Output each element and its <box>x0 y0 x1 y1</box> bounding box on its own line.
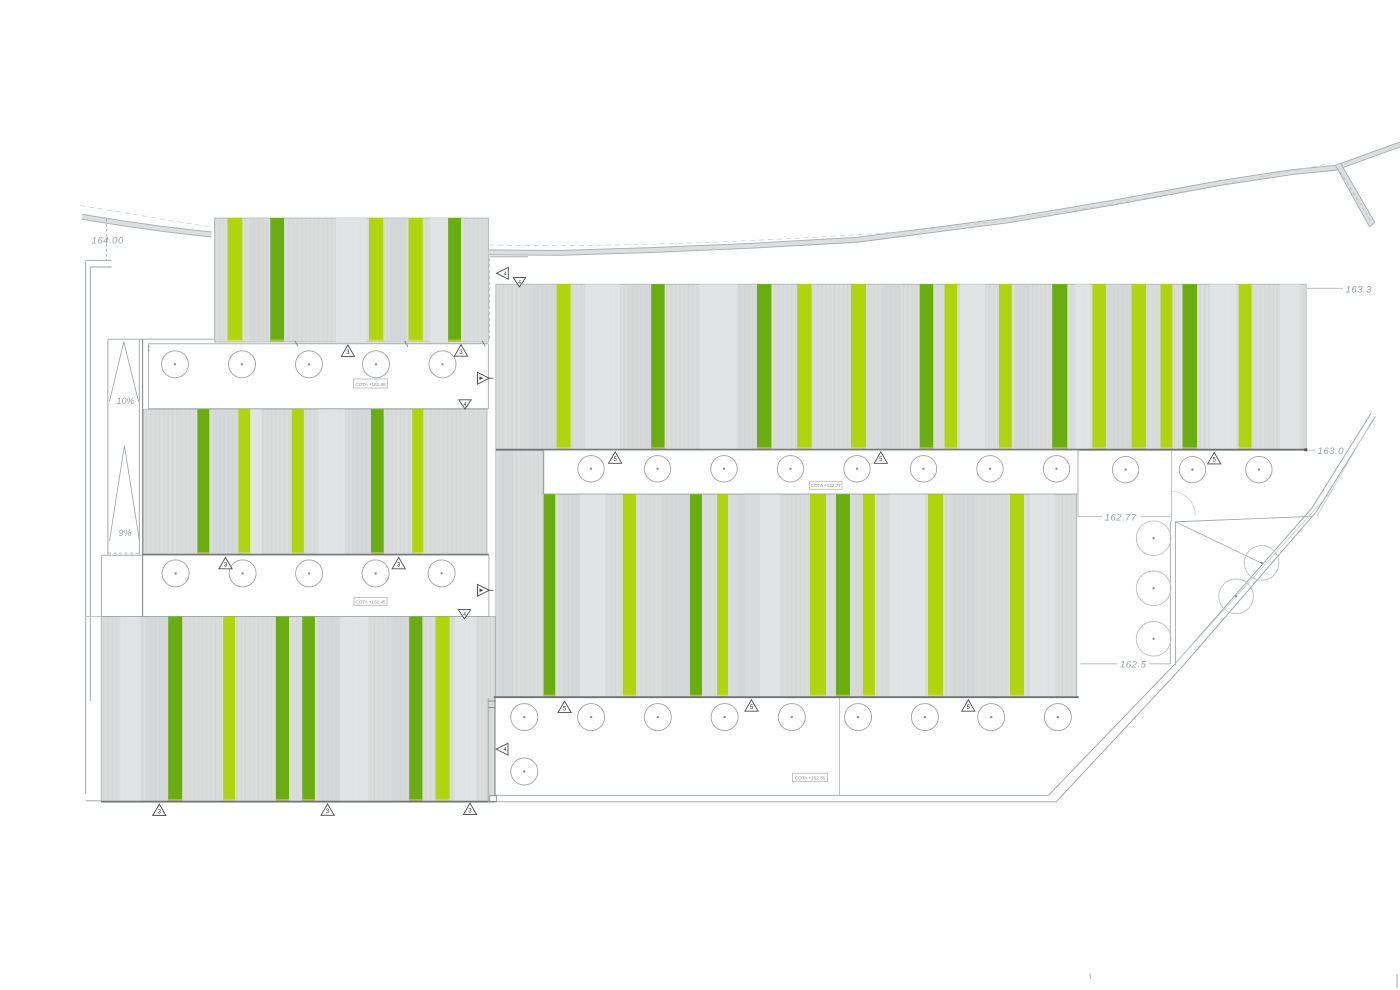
svg-text:COTA +162.77: COTA +162.77 <box>811 483 842 488</box>
svg-text:162.5: 162.5 <box>1120 659 1147 670</box>
svg-text:9%: 9% <box>119 528 132 538</box>
svg-text:4: 4 <box>464 402 467 408</box>
svg-text:162.77: 162.77 <box>1105 512 1138 523</box>
svg-text:COTA +162.45: COTA +162.45 <box>355 599 386 604</box>
svg-text:COTA +162.88: COTA +162.88 <box>355 382 386 387</box>
svg-text:4: 4 <box>463 612 466 618</box>
svg-text:163.3: 163.3 <box>1346 285 1373 296</box>
svg-text:164.00: 164.00 <box>92 236 125 247</box>
svg-text:163.0: 163.0 <box>1318 446 1345 457</box>
svg-text:4: 4 <box>518 280 521 286</box>
svg-text:4: 4 <box>504 747 507 753</box>
svg-text:COTA +162.35: COTA +162.35 <box>795 775 826 780</box>
svg-text:4: 4 <box>504 271 507 277</box>
svg-text:10%: 10% <box>117 396 135 406</box>
